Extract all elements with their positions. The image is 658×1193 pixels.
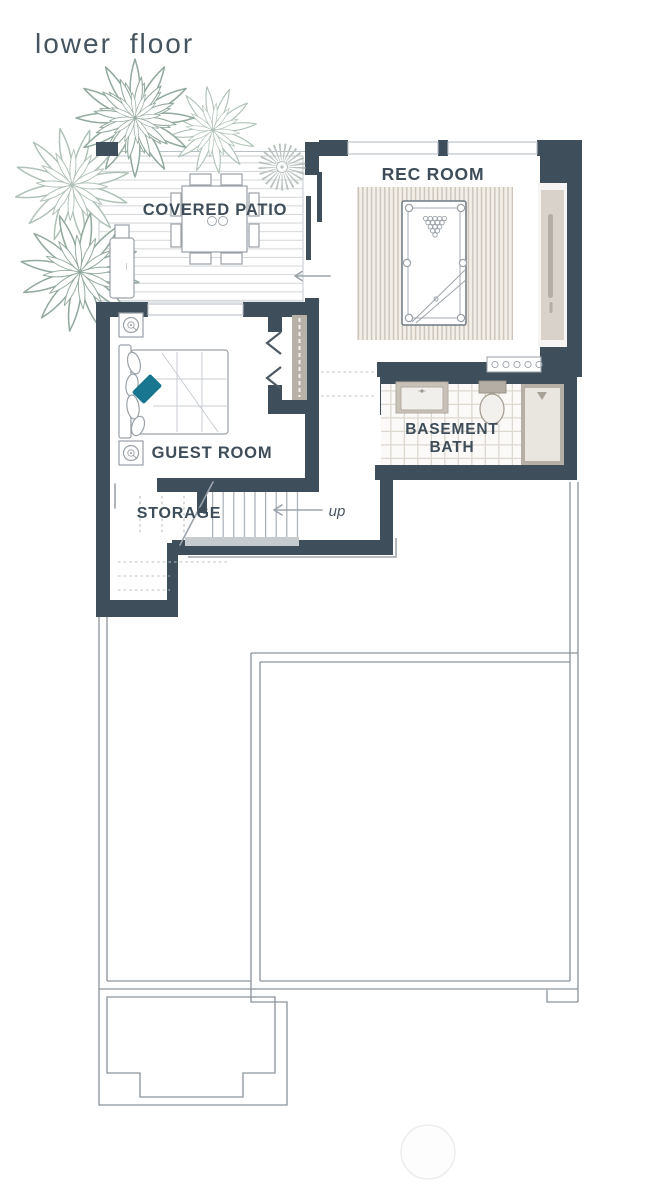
guest-room-window bbox=[148, 304, 243, 315]
outline-left-bottom bbox=[99, 981, 251, 989]
floor-plan-svg: lower floor COVERED PATIO REC ROOM GUEST… bbox=[0, 0, 658, 1193]
dining-chair bbox=[190, 253, 211, 264]
outline-court-right bbox=[570, 482, 578, 989]
wall-center bbox=[305, 298, 319, 492]
shower bbox=[523, 386, 562, 463]
room-label-covered-patio: COVERED PATIO bbox=[143, 201, 288, 219]
wall-bath-right bbox=[563, 375, 577, 480]
hall-opening-dashes bbox=[321, 372, 377, 396]
pool-table bbox=[402, 201, 467, 325]
toilet bbox=[479, 381, 506, 424]
sliding-door-recess bbox=[538, 183, 567, 347]
outline-court-top bbox=[251, 653, 578, 662]
floor-title: lower floor bbox=[35, 28, 194, 59]
sliding-door bbox=[317, 172, 322, 222]
room-label-guest-room: GUEST ROOM bbox=[152, 444, 273, 462]
outline-porch-inner bbox=[107, 997, 275, 1097]
dining-chair bbox=[190, 174, 211, 185]
wall-storage-bottom bbox=[96, 600, 172, 617]
wall-hall-column bbox=[380, 465, 393, 555]
pocket bbox=[405, 204, 412, 211]
floor-plan-page: lower floor COVERED PATIO REC ROOM GUEST… bbox=[0, 0, 658, 1193]
dining-chair bbox=[249, 224, 259, 247]
rec-room-window bbox=[348, 142, 438, 154]
outline-porch-outer bbox=[99, 981, 287, 1105]
pocket bbox=[459, 259, 466, 266]
wall-rec-right bbox=[540, 140, 582, 190]
pocket bbox=[457, 314, 464, 321]
room-label-rec-room: REC ROOM bbox=[382, 164, 485, 184]
wall-closet-stub bbox=[268, 317, 282, 332]
dining-table bbox=[182, 186, 247, 252]
table-lamp-icon bbox=[124, 446, 139, 461]
wall-rec-top bbox=[319, 140, 348, 156]
room-label-basement-bath-line2: BATH bbox=[429, 439, 474, 456]
door-handle bbox=[550, 302, 553, 313]
wall-patio-corner bbox=[96, 142, 118, 156]
dining-chair bbox=[221, 174, 242, 185]
vanity-sink bbox=[396, 382, 448, 413]
room-label-storage: STORAGE bbox=[137, 505, 221, 522]
outline-court-left bbox=[251, 653, 260, 981]
wall-left bbox=[96, 302, 110, 617]
wall-window-stub bbox=[438, 140, 448, 156]
dining-chair bbox=[221, 253, 242, 264]
grill bbox=[115, 225, 129, 239]
pocket bbox=[457, 204, 464, 211]
pocket bbox=[405, 314, 412, 321]
bifold-door bbox=[267, 332, 281, 354]
bed bbox=[119, 345, 228, 438]
door-leaf bbox=[548, 214, 553, 298]
sliding-door bbox=[306, 196, 311, 260]
wall-stairs-top bbox=[157, 478, 319, 492]
outline-court-bottom bbox=[251, 981, 578, 989]
wall-bath-bottom bbox=[375, 465, 577, 480]
wall-center bbox=[305, 142, 319, 175]
dining-chair bbox=[171, 224, 181, 247]
grill bbox=[110, 238, 134, 298]
wall-closet-bottom bbox=[268, 400, 319, 414]
outline-right-bracket bbox=[547, 989, 578, 1002]
stair-landing-bar bbox=[185, 537, 299, 546]
table-lamp-icon bbox=[124, 318, 139, 333]
outline-left bbox=[99, 617, 107, 989]
watermark-circle bbox=[401, 1125, 455, 1179]
pocket bbox=[403, 259, 410, 266]
room-label-basement-bath-line1: BASEMENT bbox=[405, 421, 498, 438]
entry-arrow bbox=[295, 272, 330, 281]
stairs-up-label: up bbox=[329, 503, 346, 520]
wine-rack bbox=[487, 357, 542, 372]
rec-room-window bbox=[448, 142, 537, 154]
